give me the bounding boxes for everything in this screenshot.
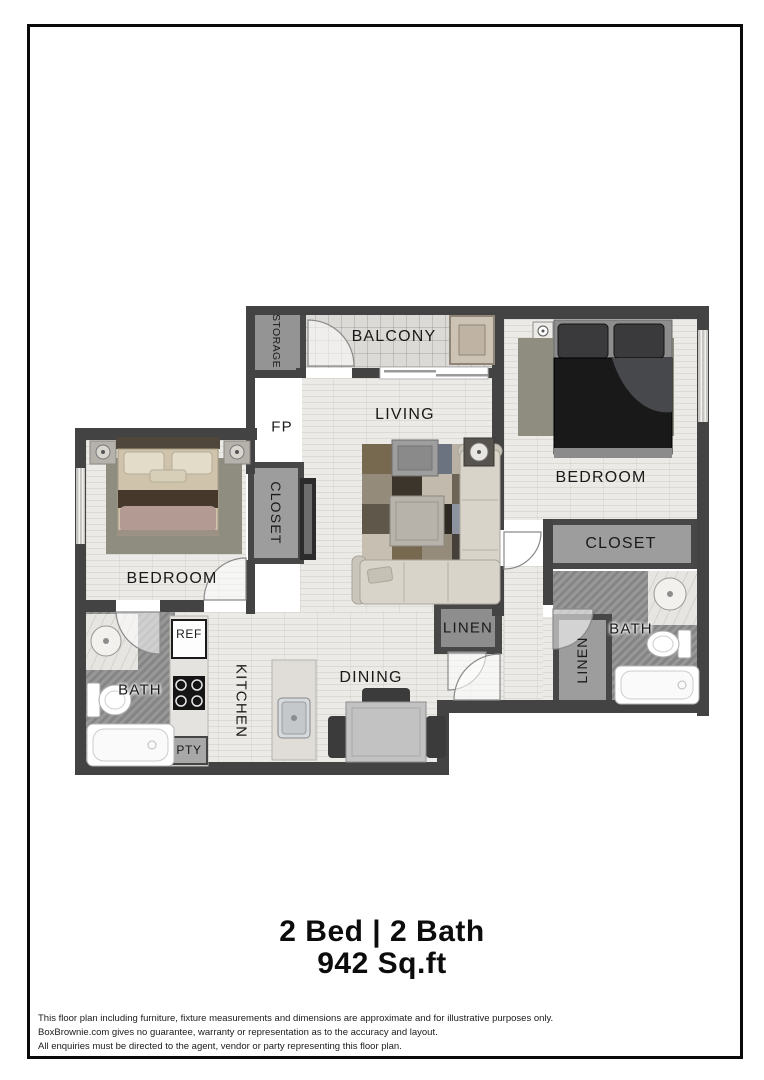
disclaimer: This floor plan including furniture, fix… (38, 1012, 726, 1053)
room-label-storage: STORAGE (270, 314, 282, 368)
label-refrigerator: REF (176, 627, 202, 641)
room-label-bedroom-right: BEDROOM (555, 469, 646, 487)
bedroom-right-floor (504, 319, 697, 520)
room-label-bath-left: BATH (118, 682, 162, 699)
room-label-closet-right: CLOSET (585, 535, 656, 553)
plan-subtitle: 942 Sq.ft (0, 948, 764, 980)
room-label-linen-closet: LINEN (574, 636, 590, 683)
bath-left-vanity (86, 614, 138, 670)
disclaimer-line-1: This floor plan including furniture, fix… (38, 1012, 726, 1026)
room-label-living: LIVING (375, 406, 435, 424)
room-label-bath-right: BATH (609, 621, 653, 638)
hall-floor-2 (504, 566, 543, 700)
disclaimer-line-3: All enquiries must be directed to the ag… (38, 1040, 726, 1054)
disclaimer-line-2: BoxBrownie.com gives no guarantee, warra… (38, 1026, 726, 1040)
bath-right-vanity (648, 571, 697, 625)
room-label-balcony: BALCONY (352, 328, 437, 346)
title-block: 2 Bed | 2 Bath 942 Sq.ft (0, 916, 764, 980)
room-label-linen-hall: LINEN (443, 620, 493, 637)
plan-title: 2 Bed | 2 Bath (0, 916, 764, 948)
room-label-dining: DINING (339, 669, 402, 687)
room-label-bedroom-left: BEDROOM (126, 570, 217, 588)
room-label-kitchen: KITCHEN (233, 664, 250, 738)
room-label-closet-left: CLOSET (268, 481, 284, 544)
room-label-fireplace: FP (271, 419, 293, 436)
label-pantry: PTY (176, 743, 201, 757)
